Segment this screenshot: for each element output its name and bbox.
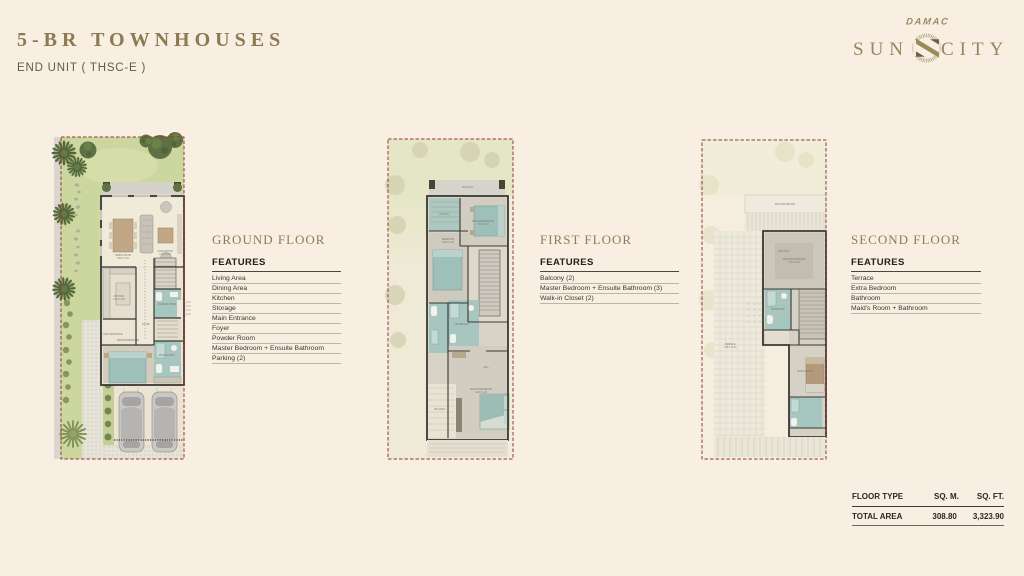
svg-text:MAID'S ROOM: MAID'S ROOM xyxy=(797,370,813,373)
svg-text:WALK-IN: WALK-IN xyxy=(439,213,449,216)
svg-text:KITCHEN: KITCHEN xyxy=(114,296,124,298)
svg-text:BALCONY: BALCONY xyxy=(779,250,790,253)
svg-text:BATHROOM: BATHROOM xyxy=(771,308,784,311)
svg-text:5.35 X 4.90: 5.35 X 4.90 xyxy=(788,262,800,264)
svg-text:7.65 X 11.10: 7.65 X 11.10 xyxy=(724,347,738,349)
svg-text:3.90 X 3.35: 3.90 X 3.35 xyxy=(477,224,489,226)
svg-text:3.55 X 4.20: 3.55 X 4.20 xyxy=(442,242,454,244)
svg-text:3.00 X 3.55: 3.00 X 3.55 xyxy=(113,299,125,301)
svg-text:MASTER BATH: MASTER BATH xyxy=(159,354,176,357)
svg-text:POWDER ROOM: POWDER ROOM xyxy=(158,304,176,306)
svg-text:BALCONY BELOW: BALCONY BELOW xyxy=(775,203,796,206)
svg-text:BEDROOM: BEDROOM xyxy=(442,239,454,241)
svg-text:4.20 X 4.20: 4.20 X 4.20 xyxy=(475,392,487,394)
svg-text:FOYER: FOYER xyxy=(142,324,150,326)
svg-text:MAIN ENTRANCE: MAIN ENTRANCE xyxy=(103,333,122,336)
svg-text:LIVING ROOM: LIVING ROOM xyxy=(157,251,172,253)
svg-text:HALL: HALL xyxy=(483,366,489,369)
svg-text:BALCONY: BALCONY xyxy=(435,408,446,411)
svg-text:MASTER BEDROOM: MASTER BEDROOM xyxy=(470,388,492,391)
svg-text:4.10 X 3.95: 4.10 X 3.95 xyxy=(159,254,171,256)
svg-text:BATHROOM: BATHROOM xyxy=(455,323,468,326)
svg-text:DINING ROOM: DINING ROOM xyxy=(115,255,131,257)
svg-text:BALCONY: BALCONY xyxy=(463,186,474,189)
svg-text:MASTER BEDROOM: MASTER BEDROOM xyxy=(783,258,805,261)
svg-text:3.60 X 3.20: 3.60 X 3.20 xyxy=(117,258,129,260)
svg-text:MASTER BEDROOM: MASTER BEDROOM xyxy=(472,220,494,223)
svg-text:TERRACE: TERRACE xyxy=(725,343,736,346)
